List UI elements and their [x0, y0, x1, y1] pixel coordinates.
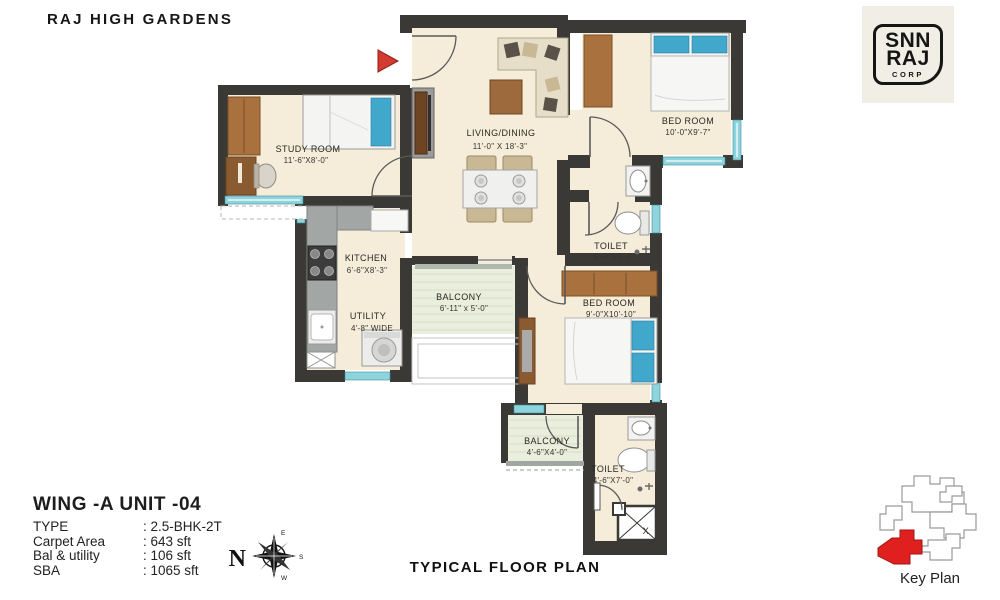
corridor-washbasin	[626, 166, 650, 196]
bed1-bed	[651, 33, 729, 111]
shaft-label: X	[643, 526, 649, 536]
info-label: TYPE	[33, 520, 143, 535]
info-row-carpet: Carpet Area : 643 sft	[33, 535, 222, 550]
foyer-shoe-cabinet	[412, 88, 434, 158]
bed2-label: BED ROOM	[583, 298, 635, 308]
living-dim: 11'-0" X 18'-3"	[473, 142, 527, 151]
unit-info-block: WING -A UNIT -04 TYPE : 2.5-BHK-2T Carpe…	[33, 494, 222, 578]
study-bed	[303, 95, 395, 149]
info-row-balutility: Bal & utility : 106 sft	[33, 549, 222, 564]
compass-east-label: E	[281, 530, 286, 537]
utility-dim: 4'-8" WIDE	[351, 324, 393, 333]
toilet1-label: TOILET	[594, 241, 628, 251]
utility-hatch-cabinet	[307, 352, 335, 368]
toilet2-dim: 4'-6"X7'-0"	[593, 476, 634, 485]
key-plan-label: Key Plan	[865, 570, 995, 587]
study-label: STUDY ROOM	[276, 144, 341, 154]
kitchen-label: KITCHEN	[345, 253, 387, 263]
info-label: Carpet Area	[33, 535, 143, 550]
utility-label: UTILITY	[350, 311, 386, 321]
balcony1-label: BALCONY	[436, 292, 482, 302]
balcony2-dim: 4'-6"X4'-0"	[527, 448, 568, 457]
info-value: : 2.5-BHK-2T	[143, 520, 222, 535]
study-wardrobe	[228, 97, 260, 155]
living-label: LIVING/DINING	[467, 128, 536, 138]
bed2-bed	[565, 318, 657, 384]
bed2-dim: 9'-0"X10'-10"	[586, 310, 636, 319]
bed1-wardrobe	[584, 35, 612, 107]
kitchen-stove	[308, 246, 336, 280]
kitchen-sink	[308, 310, 336, 344]
compass-north-label: N	[229, 546, 247, 572]
bed1-dim: 10'-0"X9'-7"	[665, 128, 710, 137]
info-label: SBA	[33, 564, 143, 579]
compass-south-label: S	[299, 554, 304, 561]
washing-machine	[362, 330, 402, 366]
bed1-label: BED ROOM	[662, 116, 714, 126]
bed2-dresser	[519, 318, 535, 384]
info-value: : 1065 sft	[143, 564, 199, 579]
info-row-type: TYPE : 2.5-BHK-2T	[33, 520, 222, 535]
shaft: X	[613, 503, 656, 540]
compass-west-label: W	[281, 575, 288, 582]
bed2-wardrobe	[562, 271, 657, 296]
kitchen-dim: 6'-6"X8'-3"	[347, 266, 388, 275]
info-row-sba: SBA : 1065 sft	[33, 564, 222, 579]
balcony2-label: BALCONY	[524, 436, 570, 446]
toilet1-wc	[615, 211, 649, 235]
study-dim: 11'-6"X8'-0"	[284, 156, 329, 165]
key-plan-diagram	[878, 476, 976, 564]
info-value: : 643 sft	[143, 535, 191, 550]
info-value: : 106 sft	[143, 549, 191, 564]
key-plan-highlighted-unit	[878, 530, 922, 564]
info-label: Bal & utility	[33, 549, 143, 564]
toilet2-washbasin	[628, 417, 655, 440]
unit-title: WING -A UNIT -04	[33, 494, 222, 516]
balcony1-dim: 6'-11" x 5'-0"	[440, 304, 488, 313]
living-coffee-table	[490, 80, 522, 114]
toilet1-dim: 5'-0"X5'-1"	[594, 252, 635, 261]
floor-plan-page: { "header": { "title": "RAJ HIGH GARDENS…	[0, 0, 1000, 600]
compass-icon: N E S W	[229, 530, 304, 582]
entry-arrow	[378, 50, 398, 72]
toilet2-label: TOILET	[591, 464, 625, 474]
plan-caption: TYPICAL FLOOR PLAN	[380, 559, 630, 576]
